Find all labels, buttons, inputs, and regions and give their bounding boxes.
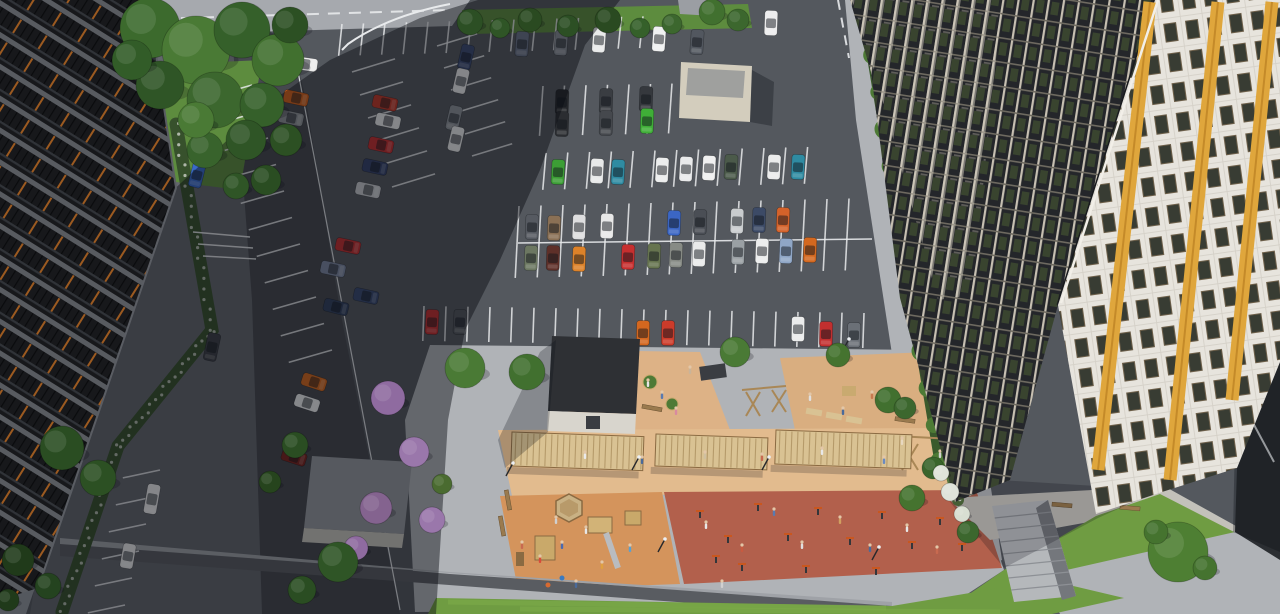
car-hood: [757, 257, 767, 261]
person-body: [801, 544, 803, 550]
person: [583, 450, 586, 459]
tree-highlight: [182, 106, 200, 124]
tree-highlight: [702, 2, 715, 15]
car: [590, 158, 604, 184]
car: [599, 88, 613, 113]
car-glass: [757, 246, 767, 256]
person-body: [906, 527, 908, 533]
person: [560, 540, 563, 549]
car-glass: [601, 96, 611, 106]
person-head: [584, 525, 587, 528]
car: [724, 154, 738, 180]
person: [520, 540, 523, 549]
car-glass: [681, 164, 691, 174]
person-head: [674, 406, 677, 409]
person-body: [842, 410, 844, 416]
person: [935, 545, 938, 554]
car-hood: [669, 229, 679, 233]
car: [803, 237, 817, 262]
fitness-bar: [872, 567, 880, 569]
person: [554, 515, 557, 524]
tree-highlight: [723, 340, 738, 355]
fitness-post: [939, 518, 941, 525]
tree-highlight: [402, 440, 417, 455]
flower-dot: [183, 163, 186, 166]
car-glass: [769, 162, 779, 172]
car: [767, 154, 781, 180]
person-body: [601, 564, 603, 570]
car-hood: [612, 178, 622, 183]
flower-dot: [177, 133, 180, 136]
car: [776, 207, 790, 232]
flower-dot: [177, 154, 180, 157]
car-hood: [821, 340, 831, 344]
person: [688, 365, 691, 374]
car: [621, 244, 635, 269]
tree-highlight: [322, 546, 342, 566]
person-body: [761, 456, 763, 462]
tree-highlight: [226, 176, 239, 189]
car-hood: [768, 173, 778, 178]
fitness-bar: [802, 565, 810, 567]
person-head: [660, 390, 663, 393]
car: [690, 29, 705, 55]
person: [703, 450, 706, 459]
person-head: [870, 390, 873, 393]
car-hood: [656, 176, 666, 181]
car-hood: [548, 264, 558, 268]
fitness-bar: [784, 533, 792, 535]
lamp-head: [877, 545, 881, 549]
person-body: [773, 511, 775, 517]
car-glass: [671, 250, 681, 260]
person: [900, 436, 903, 445]
person: [600, 560, 603, 569]
car-glass: [733, 247, 743, 257]
kids-play-area: [500, 492, 680, 590]
person: [640, 455, 643, 464]
car-glass: [526, 253, 536, 263]
car-hood: [805, 256, 815, 260]
person-body: [883, 459, 885, 465]
person: [674, 406, 677, 415]
car-glass: [754, 215, 764, 225]
car-hood: [649, 262, 659, 266]
car-glass: [732, 216, 742, 226]
person-head: [560, 540, 563, 543]
pergola: [771, 430, 912, 477]
fitness-bar: [936, 517, 944, 519]
fitness-bar: [846, 537, 854, 539]
car-glass: [781, 246, 791, 256]
person-head: [703, 450, 706, 453]
car-glass: [649, 251, 659, 261]
person-body: [821, 450, 823, 456]
person-body: [675, 410, 677, 416]
tree-highlight: [896, 399, 907, 410]
fitness-post: [727, 536, 729, 543]
fitness-post: [961, 544, 963, 551]
tree-highlight: [492, 20, 502, 30]
person-head: [554, 515, 557, 518]
tree-highlight: [374, 384, 391, 401]
car: [819, 321, 832, 346]
tree-highlight: [116, 44, 136, 64]
car-glass: [669, 218, 679, 228]
person-head: [646, 378, 649, 381]
car-hood: [527, 233, 537, 237]
person-head: [628, 543, 631, 546]
person-body: [705, 524, 707, 530]
person: [808, 392, 811, 401]
person: [660, 390, 663, 399]
person-body: [585, 529, 587, 535]
pergolas: [507, 430, 912, 479]
car-glass: [641, 94, 651, 104]
car-glass: [557, 119, 567, 129]
tree-highlight: [1195, 558, 1207, 570]
person: [628, 543, 631, 552]
tree-highlight: [559, 17, 570, 28]
fitness-bar: [712, 555, 720, 557]
tree-highlight: [1146, 522, 1158, 534]
car-glass: [766, 18, 776, 28]
car-glass: [553, 167, 563, 177]
car-glass: [574, 222, 584, 232]
tree-highlight: [363, 495, 379, 511]
tree-highlight: [5, 547, 21, 563]
person: [882, 455, 885, 464]
tree-highlight: [924, 459, 935, 470]
person: [760, 452, 763, 461]
car-hood: [663, 339, 673, 343]
person-head: [760, 452, 763, 455]
tree-highlight: [664, 16, 674, 26]
tree-highlight: [84, 464, 102, 482]
car: [702, 155, 716, 181]
person-head: [688, 365, 691, 368]
aerial-render-viewport: Aerial 3D render of residential complex …: [0, 0, 1280, 614]
fitness-post: [817, 508, 819, 515]
person-body: [809, 396, 811, 402]
tree-highlight: [193, 78, 221, 106]
spring-rider: [546, 583, 551, 588]
car-glass: [663, 328, 673, 338]
pergola-roof: [775, 430, 912, 469]
car-hood: [766, 29, 776, 33]
fitness-post: [849, 538, 851, 545]
tree-highlight: [729, 11, 740, 22]
car-glass: [778, 215, 788, 225]
person-head: [868, 543, 871, 546]
tree-highlight: [959, 523, 970, 534]
person: [646, 378, 649, 387]
person-head: [720, 579, 723, 582]
car: [600, 213, 614, 238]
person-body: [629, 547, 631, 553]
car: [547, 215, 561, 240]
person-body: [704, 454, 706, 460]
person-body: [869, 547, 871, 553]
car-hood: [549, 234, 559, 238]
car-hood: [593, 46, 603, 51]
car: [647, 243, 661, 268]
tree-highlight: [449, 352, 469, 372]
person-body: [584, 454, 586, 460]
person-body: [661, 394, 663, 400]
fitness-bar: [908, 541, 916, 543]
tree-highlight: [434, 476, 444, 486]
person-body: [561, 544, 563, 550]
car-glass: [793, 162, 803, 172]
car-glass: [602, 221, 612, 231]
car-hood: [642, 127, 652, 131]
car-glass: [805, 245, 815, 255]
person: [538, 554, 541, 563]
car-glass: [549, 223, 559, 233]
fitness-bar: [738, 563, 746, 565]
fitness-area: [664, 490, 1002, 584]
tree-highlight: [828, 345, 840, 357]
pergola: [651, 434, 768, 478]
person-body: [647, 382, 649, 388]
tree-highlight: [220, 8, 248, 36]
car: [731, 239, 745, 264]
fitness-post: [881, 512, 883, 519]
car: [791, 154, 805, 180]
play-tower-c: [625, 511, 641, 525]
lamp-head: [767, 455, 771, 459]
person-head: [820, 446, 823, 449]
car: [640, 108, 654, 133]
fitness-post: [741, 564, 743, 571]
car: [599, 110, 613, 135]
fitness-bar: [754, 503, 762, 505]
car: [669, 242, 683, 267]
car-glass: [726, 162, 736, 172]
tree-highlight: [230, 124, 250, 144]
car: [661, 320, 674, 345]
car-hood: [671, 261, 681, 265]
person-head: [600, 560, 603, 563]
car-glass: [527, 222, 537, 232]
car: [679, 156, 693, 182]
person-body: [939, 453, 941, 459]
tree-highlight: [276, 11, 294, 29]
tree-highlight: [956, 508, 964, 516]
car: [755, 238, 769, 263]
playground-pavilion-door: [586, 416, 600, 429]
car-glass: [704, 163, 714, 173]
tree-highlight: [38, 576, 51, 589]
car-hood: [695, 228, 705, 232]
lamp-head: [663, 537, 667, 541]
tree-highlight: [935, 467, 943, 475]
car: [693, 209, 707, 234]
person: [704, 520, 707, 529]
car-glass: [623, 252, 633, 262]
person-head: [935, 545, 938, 548]
person-body: [901, 440, 903, 446]
car-hood: [732, 227, 742, 231]
car: [779, 238, 793, 263]
tree-highlight: [191, 136, 209, 154]
person-head: [841, 406, 844, 409]
person-head: [882, 455, 885, 458]
tree-highlight: [169, 23, 203, 57]
car-hood: [703, 174, 713, 179]
person-body: [555, 519, 557, 525]
rendered-scene: Aerial 3D render of residential complex …: [0, 0, 1280, 614]
car-hood: [574, 265, 584, 269]
car-glass: [657, 165, 667, 175]
person: [838, 515, 841, 524]
person-body: [689, 369, 691, 375]
climbing-panel: [516, 552, 524, 566]
tree-highlight: [257, 39, 283, 65]
car-hood: [526, 264, 536, 268]
person-head: [772, 507, 775, 510]
lamp-head: [637, 455, 641, 459]
tree-highlight: [285, 435, 298, 448]
person-head: [900, 436, 903, 439]
person-body: [575, 583, 577, 589]
car-hood: [778, 226, 788, 230]
person: [905, 523, 908, 532]
car-glass: [654, 34, 665, 44]
car: [752, 207, 766, 232]
car-glass: [695, 217, 705, 227]
person-head: [520, 540, 523, 543]
car: [639, 86, 653, 111]
person-body: [641, 459, 643, 465]
tree-highlight: [126, 4, 156, 34]
person-body: [936, 549, 938, 555]
person-body: [839, 519, 841, 525]
person: [772, 507, 775, 516]
car: [525, 214, 539, 239]
person: [938, 449, 941, 458]
tree-highlight: [244, 87, 266, 109]
fitness-bar: [696, 510, 704, 512]
fitness-post: [715, 556, 717, 563]
person-head: [838, 515, 841, 518]
fitness-bar: [724, 535, 732, 537]
person-head: [704, 520, 707, 523]
car-hood: [849, 341, 859, 345]
person-head: [800, 540, 803, 543]
flower-dot: [183, 174, 186, 177]
car-glass: [574, 254, 584, 264]
person-head: [583, 450, 586, 453]
car: [551, 159, 565, 185]
car: [546, 245, 560, 270]
tree-highlight: [261, 473, 272, 484]
tree-highlight: [520, 10, 532, 22]
person: [841, 406, 844, 415]
person: [720, 579, 723, 588]
person-body: [871, 394, 873, 400]
person-head: [808, 392, 811, 395]
fitness-bar: [878, 511, 886, 513]
car-hood: [733, 258, 743, 262]
person-body: [741, 547, 743, 553]
tree-highlight: [632, 20, 642, 30]
car-hood: [793, 335, 803, 339]
car-glass: [592, 166, 602, 176]
car-glass: [694, 249, 704, 259]
tree-highlight: [273, 127, 289, 143]
tree-highlight: [943, 485, 952, 494]
planter: [643, 375, 657, 389]
playground-pavilion-roof: [548, 336, 640, 414]
person: [800, 540, 803, 549]
person-head: [905, 523, 908, 526]
person-head: [574, 579, 577, 582]
car: [791, 316, 804, 341]
car-glass: [692, 37, 703, 47]
car-glass: [793, 324, 803, 334]
tree-highlight: [513, 358, 531, 376]
car-hood: [623, 263, 633, 267]
person: [868, 543, 871, 552]
person-head: [538, 554, 541, 557]
car-glass: [642, 116, 652, 126]
car-hood: [552, 178, 562, 183]
tree-highlight: [291, 579, 305, 593]
car: [655, 157, 669, 183]
person-head: [640, 455, 643, 458]
car-hood: [792, 173, 802, 178]
car-hood: [754, 226, 764, 230]
car-hood: [680, 175, 690, 180]
car-glass: [821, 329, 831, 339]
fitness-post: [805, 566, 807, 573]
fitness-bar: [958, 543, 966, 545]
car: [572, 214, 586, 239]
tree-highlight: [44, 430, 66, 452]
fitness-post: [787, 534, 789, 541]
tree-highlight: [902, 488, 915, 501]
car-glass: [638, 328, 648, 338]
car: [572, 246, 586, 271]
fitness-post: [757, 504, 759, 511]
tree-highlight: [254, 168, 269, 183]
car-glass: [601, 118, 611, 128]
fitness-post: [699, 511, 701, 518]
tree-highlight: [460, 12, 473, 25]
fitness-post: [911, 542, 913, 549]
car-hood: [653, 45, 663, 50]
tree-highlight: [422, 510, 435, 523]
car: [764, 10, 778, 35]
car: [524, 245, 538, 270]
car: [847, 322, 860, 347]
tree-highlight: [878, 390, 891, 403]
car-hood: [591, 177, 601, 182]
tree-highlight: [598, 10, 611, 23]
car: [611, 159, 625, 185]
car-hood: [694, 260, 704, 264]
car-glass: [594, 35, 605, 45]
lamp-head: [847, 337, 851, 341]
person-head: [740, 543, 743, 546]
person: [740, 543, 743, 552]
play-tower-b: [588, 517, 612, 533]
person-body: [539, 558, 541, 564]
car-glass: [548, 253, 558, 263]
picnic-table: [842, 386, 856, 396]
